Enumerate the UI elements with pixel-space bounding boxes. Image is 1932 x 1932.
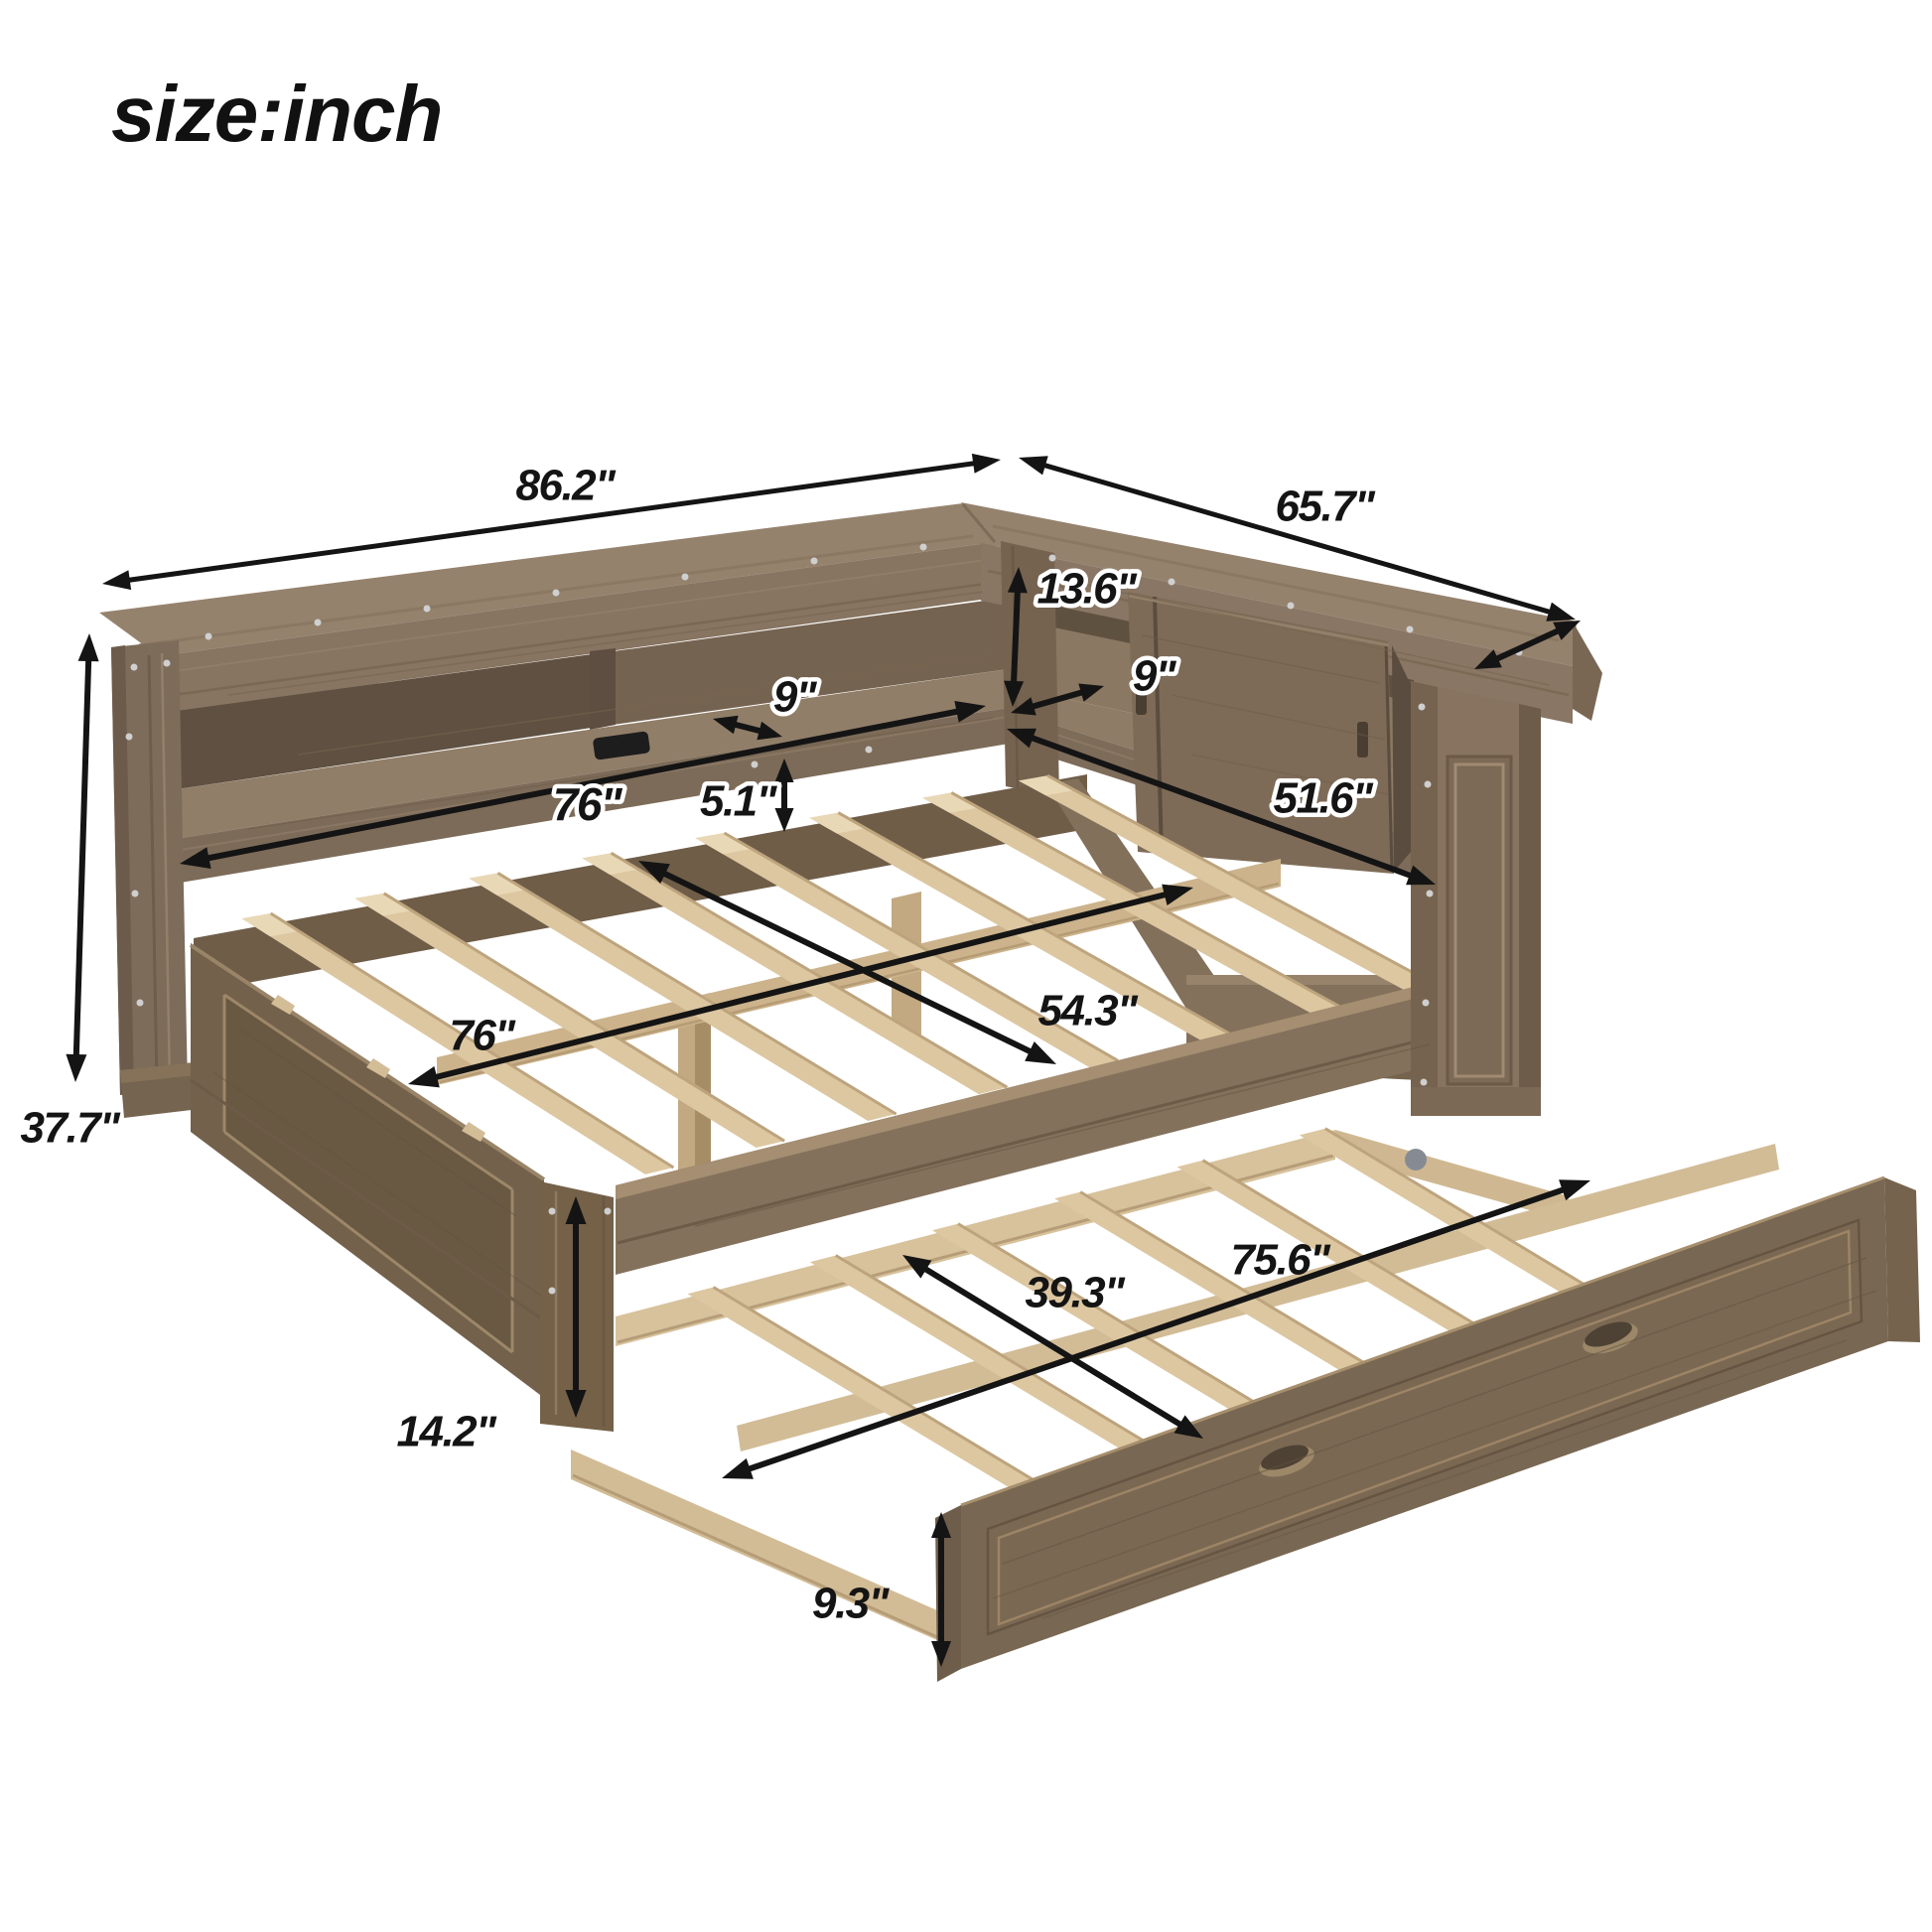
svg-text:14.2": 14.2" bbox=[397, 1408, 498, 1456]
svg-text:65.7": 65.7" bbox=[1276, 483, 1377, 531]
svg-text:9": 9" bbox=[1133, 652, 1177, 701]
svg-text:13.6": 13.6" bbox=[1037, 565, 1139, 614]
svg-text:9": 9" bbox=[773, 673, 818, 722]
svg-text:54.3": 54.3" bbox=[1038, 987, 1140, 1035]
svg-text:76": 76" bbox=[449, 1012, 516, 1060]
svg-text:76": 76" bbox=[553, 778, 623, 830]
svg-text:86.2": 86.2" bbox=[516, 462, 618, 510]
svg-text:9.3": 9.3" bbox=[812, 1580, 891, 1628]
svg-text:51.6": 51.6" bbox=[1274, 774, 1375, 823]
svg-text:5.1": 5.1" bbox=[700, 777, 778, 826]
svg-text:37.7": 37.7" bbox=[21, 1104, 122, 1153]
svg-text:75.6": 75.6" bbox=[1231, 1236, 1332, 1285]
svg-text:39.3": 39.3" bbox=[1026, 1269, 1127, 1317]
svg-text:size:inch: size:inch bbox=[111, 69, 442, 158]
